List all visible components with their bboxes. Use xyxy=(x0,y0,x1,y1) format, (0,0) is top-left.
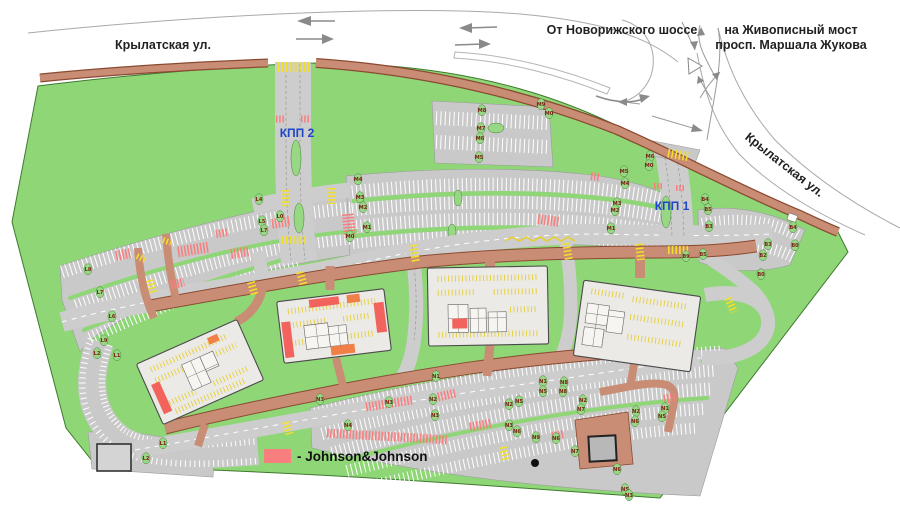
parking-row-label: N5 xyxy=(539,389,547,395)
parking-row-label: B0 xyxy=(791,243,799,249)
parking-row-label: N5 xyxy=(515,399,523,405)
parking-row-label: N5 xyxy=(658,414,666,420)
parking-row-label: N3 xyxy=(505,423,513,429)
parking-row-label: N3 xyxy=(316,397,324,403)
street-label-krylatskaya-left: Крылатская ул. xyxy=(115,38,211,52)
street-label-novorizhskoye: От Новорижского шоссе xyxy=(547,23,698,37)
parking-row-label: N2 xyxy=(579,398,587,404)
parking-row-label: N3 xyxy=(385,400,393,406)
checkpoint-2-label: КПП 2 xyxy=(280,126,315,140)
parking-row-label: M1 xyxy=(607,226,616,232)
parking-row-label: M2 xyxy=(611,208,620,214)
parking-row-label: N8 xyxy=(560,380,568,386)
parking-row-label: N6 xyxy=(613,467,621,473)
arrow-merge-head xyxy=(639,94,650,103)
parking-row-label: B5 xyxy=(704,207,712,213)
kpp2-median-island-2 xyxy=(294,203,304,233)
parking-row-label: L1 xyxy=(114,353,121,359)
parking-row-label: N9 xyxy=(532,435,540,441)
arrow-right-2-head xyxy=(479,39,491,49)
lot-M-upper xyxy=(432,101,553,167)
parking-row-label: M5 xyxy=(475,155,484,161)
building-2 xyxy=(277,289,392,364)
parking-row-label: N2 xyxy=(632,409,640,415)
parking-row-label: N1 xyxy=(432,374,440,380)
parking-row-label: N3 xyxy=(431,413,439,419)
parking-row-label: B2 xyxy=(759,253,767,259)
parking-row-label: M4 xyxy=(621,181,630,187)
parking-row-label: M2 xyxy=(359,205,368,211)
parking-row-label: N7 xyxy=(577,407,585,413)
parking-row-label: L7 xyxy=(261,228,268,234)
parking-row-label: N2 xyxy=(505,402,513,408)
parking-row-label: N6 xyxy=(631,419,639,425)
parking-row-label: B3 xyxy=(764,242,772,248)
parking-row-label: N8 xyxy=(559,389,567,395)
legend-label: - Johnson&Johnson xyxy=(297,449,428,464)
parking-row-label: M6 xyxy=(476,136,485,142)
kpp2-median-island xyxy=(291,140,301,176)
arrow-merge xyxy=(596,96,643,102)
street-label-zhivopisny-1: на Живописный мост xyxy=(724,23,857,37)
arrow-left-1-head xyxy=(297,16,311,26)
site-plan-page: M8M9M0M7M6M5M6M0M5M4M3M2M1M4M3M2M1M0L4L0… xyxy=(0,0,900,509)
parking-row-label: N4 xyxy=(344,423,352,429)
arrow-right-1-head xyxy=(322,34,334,44)
transformer-structure xyxy=(588,435,616,461)
arrow-diag-head xyxy=(691,124,703,132)
parking-row-label: M1 xyxy=(363,225,372,231)
parking-row-label: L1 xyxy=(160,441,167,447)
legend: - Johnson&Johnson xyxy=(264,449,428,464)
parking-row-label: L9 xyxy=(101,338,108,344)
parking-row-label: L7 xyxy=(97,290,104,296)
parking-row-label: B0 xyxy=(757,272,765,278)
street-label-krylatskaya-right: Крылатская ул. xyxy=(742,130,826,200)
checkpoint-1-label: КПП 1 xyxy=(655,199,690,213)
parking-row-label: L2 xyxy=(94,351,101,357)
parking-row-label: M7 xyxy=(477,126,486,132)
legend-swatch xyxy=(264,449,291,463)
parking-row-label: N6 xyxy=(513,429,521,435)
parking-row-label: B9 xyxy=(682,254,690,260)
parking-row-label: N6 xyxy=(552,436,560,442)
arrow-diag xyxy=(652,116,696,129)
parking-row-label: L8 xyxy=(85,267,92,273)
parking-row-label: M6 xyxy=(646,154,655,160)
yield-triangle xyxy=(688,58,702,74)
parking-row-label: B3 xyxy=(705,224,713,230)
parking-row-label: B4 xyxy=(789,225,797,231)
parking-row-label: M8 xyxy=(478,108,487,114)
building-4 xyxy=(573,280,700,372)
parking-row-label: N2 xyxy=(429,397,437,403)
ramp-arrowhead-2 xyxy=(697,27,705,36)
parking-row-label: M0 xyxy=(645,163,654,169)
site-plan-map: M8M9M0M7M6M5M6M0M5M4M3M2M1M4M3M2M1M0L4L0… xyxy=(0,0,900,509)
arrow-left-2-head xyxy=(459,23,472,33)
parking-row-label: L6 xyxy=(109,314,116,320)
parking-row-label: M5 xyxy=(620,169,629,175)
parking-row-label: N1 xyxy=(539,379,547,385)
street-label-zhivopisny-2: просп. Маршала Жукова xyxy=(715,38,867,52)
building-3 xyxy=(427,266,548,346)
parking-row-label: B4 xyxy=(701,197,709,203)
parking-row-label: B5 xyxy=(699,252,707,258)
map-dot xyxy=(531,459,539,467)
parking-row-label: L5 xyxy=(259,219,266,225)
parking-row-label: L0 xyxy=(277,214,284,220)
parking-row-label: N7 xyxy=(571,449,579,455)
corner-structure xyxy=(97,444,131,471)
arrow-right-2 xyxy=(455,44,483,45)
parking-row-label: L2 xyxy=(143,456,150,462)
parking-row-label: M9 xyxy=(537,102,546,108)
parking-row-label: M0 xyxy=(545,111,554,117)
parking-row-label: L4 xyxy=(256,197,263,203)
parking-row-label: M4 xyxy=(354,177,363,183)
arrow-small-left-head xyxy=(618,98,627,106)
parking-row-label: M0 xyxy=(346,234,355,240)
parking-row-label: M3 xyxy=(356,195,365,201)
parking-row-label: N3 xyxy=(625,493,633,499)
